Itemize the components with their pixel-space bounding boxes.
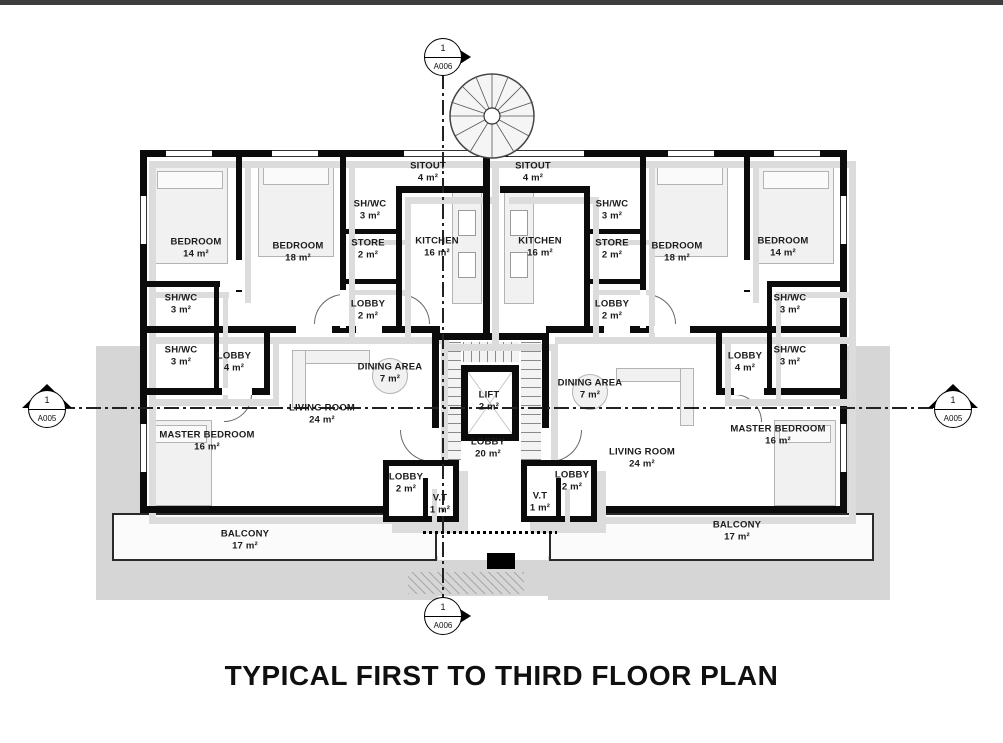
- wall: [716, 333, 722, 395]
- section-line-horizontal: [60, 407, 940, 409]
- building-shadow: [548, 556, 890, 600]
- section-marker-bottom: 1 A006: [424, 597, 462, 635]
- room-label: MASTER BEDROOM16 m²: [730, 424, 825, 449]
- room-label: BALCONY17 m²: [221, 529, 269, 554]
- door-arc: [400, 430, 432, 462]
- wall: [423, 478, 428, 522]
- kitchen-sink: [458, 210, 476, 236]
- room-label: SH/WC3 m²: [165, 345, 198, 370]
- room-label: LOBBY2 m²: [555, 470, 589, 495]
- marker-number: 1: [440, 598, 445, 616]
- section-line-vertical: [442, 74, 444, 602]
- wall: [344, 279, 402, 284]
- wall: [767, 281, 847, 287]
- room-label: LIVING ROOM24 m²: [289, 403, 355, 428]
- window: [840, 196, 847, 244]
- marker-number: 1: [44, 391, 49, 409]
- room-label: SH/WC3 m²: [596, 199, 629, 224]
- door-opening: [356, 326, 382, 333]
- door-opening: [340, 290, 346, 328]
- room-label: V.T1 m²: [530, 491, 550, 516]
- room-label: LOBBY2 m²: [351, 299, 385, 324]
- room-label: LOBBY4 m²: [728, 351, 762, 376]
- wall: [264, 333, 270, 395]
- wall: [396, 190, 402, 333]
- wall: [767, 281, 772, 393]
- room-label: LOBBY2 m²: [389, 472, 423, 497]
- room-label: LIFT2 m²: [479, 390, 500, 415]
- marker-number: 1: [950, 391, 955, 409]
- door-arc: [400, 294, 430, 324]
- ground-hatch: [408, 572, 524, 594]
- window: [668, 150, 714, 157]
- room-label: LIVING ROOM24 m²: [609, 447, 675, 472]
- wall: [140, 326, 440, 333]
- kitchen-sink: [458, 252, 476, 278]
- room-label: BALCONY17 m²: [713, 520, 761, 545]
- door-arc: [646, 294, 676, 324]
- room-label: LOBBY2 m²: [595, 299, 629, 324]
- spiral-staircase: [448, 72, 536, 160]
- room-label: SH/WC3 m²: [774, 293, 807, 318]
- marker-number: 1: [440, 39, 445, 57]
- door-opening: [542, 428, 549, 460]
- sofa: [680, 368, 694, 426]
- room-label: SITOUT4 m²: [410, 161, 446, 186]
- door-arc: [550, 430, 582, 462]
- wall: [214, 281, 219, 393]
- window: [166, 150, 212, 157]
- building-shadow: [96, 556, 438, 600]
- room-label: KITCHEN16 m²: [518, 236, 562, 261]
- door-opening: [734, 388, 764, 395]
- room-label: SITOUT4 m²: [515, 161, 551, 186]
- kitchen-sink: [510, 210, 528, 236]
- wall: [432, 333, 549, 340]
- room-label: DINING AREA7 m²: [558, 378, 623, 403]
- stair-flight: [521, 342, 541, 460]
- room-label: MASTER BEDROOM16 m²: [159, 430, 254, 455]
- room-label: BEDROOM18 m²: [651, 241, 702, 266]
- door-opening: [296, 326, 332, 333]
- marker-sheet: A005: [935, 409, 971, 428]
- door-opening: [744, 260, 750, 290]
- wall: [500, 186, 590, 193]
- stair-landing: [463, 342, 519, 362]
- room-label: SH/WC3 m²: [354, 199, 387, 224]
- drawing-title: TYPICAL FIRST TO THIRD FLOOR PLAN: [0, 660, 1003, 692]
- room-label: DINING AREA7 m²: [358, 362, 423, 387]
- room-label: BEDROOM14 m²: [757, 236, 808, 261]
- door-opening: [236, 260, 242, 290]
- window: [272, 150, 318, 157]
- window: [140, 196, 147, 244]
- section-marker-right: 1 A005: [934, 390, 972, 428]
- marker-sheet: A006: [425, 57, 461, 76]
- window: [840, 424, 847, 472]
- wall: [584, 229, 642, 234]
- room-label: V.T1 m²: [430, 493, 450, 518]
- floor-plan-sheet: BEDROOM14 m² BEDROOM18 m² SH/WC3 m² STOR…: [0, 0, 1003, 743]
- marker-sheet: A005: [29, 409, 65, 428]
- section-marker-left: 1 A005: [28, 390, 66, 428]
- wall: [483, 150, 490, 333]
- wall: [584, 190, 590, 333]
- room-label: SH/WC3 m²: [165, 293, 198, 318]
- balcony-right: [549, 513, 874, 561]
- sofa: [292, 350, 306, 408]
- stair-flight: [441, 342, 461, 460]
- door-opening: [654, 326, 690, 333]
- wall: [584, 279, 642, 284]
- room-label: SH/WC3 m²: [774, 345, 807, 370]
- wall: [546, 326, 847, 333]
- room-label: LOBBY4 m²: [217, 351, 251, 376]
- door-opening: [222, 388, 252, 395]
- wall: [140, 281, 220, 287]
- door-opening: [604, 326, 630, 333]
- room-label: STORE2 m²: [595, 238, 629, 263]
- room-label: BEDROOM18 m²: [272, 241, 323, 266]
- wall: [396, 186, 486, 193]
- room-label: KITCHEN16 m²: [415, 236, 459, 261]
- sheet-top-border: [0, 0, 1003, 5]
- entrance-step: [487, 553, 515, 569]
- section-marker-top: 1 A006: [424, 38, 462, 76]
- door-opening: [640, 290, 646, 328]
- marker-sheet: A006: [425, 616, 461, 635]
- door-opening: [432, 428, 439, 460]
- room-label: LOBBY20 m²: [471, 437, 505, 462]
- window: [140, 424, 147, 472]
- room-label: STORE2 m²: [351, 238, 385, 263]
- room-label: BEDROOM14 m²: [170, 237, 221, 262]
- window: [774, 150, 820, 157]
- wall: [344, 229, 402, 234]
